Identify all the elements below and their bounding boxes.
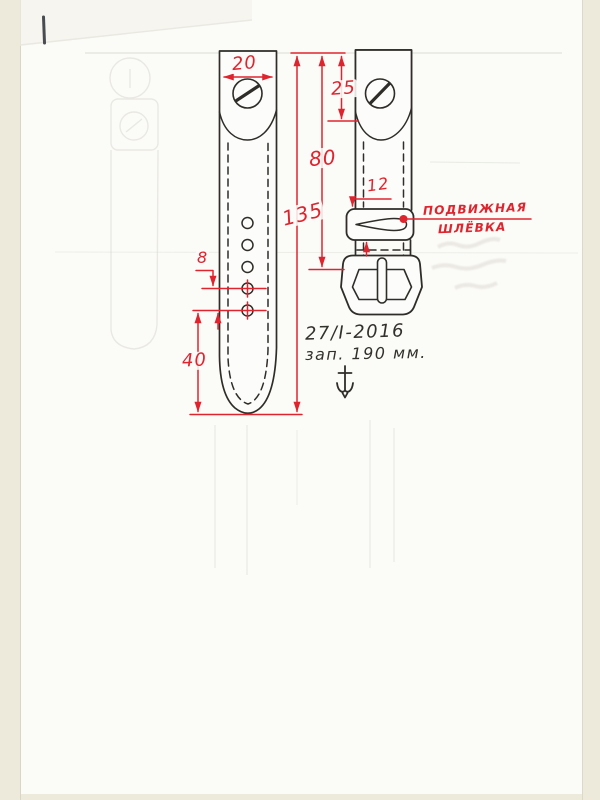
note-date: 27/I-2016 <box>305 322 406 343</box>
dim-label-top-to-buckle: 80 <box>307 147 338 169</box>
bleed-through-ghost <box>110 58 158 349</box>
keeper <box>347 209 414 240</box>
dim-label-lug-tab: 25 <box>329 79 357 99</box>
ghost-handwriting <box>432 239 506 288</box>
drawing-canvas <box>0 0 600 800</box>
note-length: зап. 190 мм. <box>305 345 427 363</box>
dim-label-tip-to-hole: 40 <box>181 351 209 370</box>
keeper-callout-line2: ШЛЁВКА <box>438 221 507 235</box>
dim-label-hole-pitch: 8 <box>196 250 209 266</box>
pencil-guide-lines <box>55 53 578 575</box>
dim-label-keeper: 12 <box>365 175 391 194</box>
scanned-strap-drawing: 20 25 80 135 12 8 40 ПОДВИЖНАЯ ШЛЁВКА 27… <box>0 0 600 800</box>
dim-label-strap-width: 20 <box>230 54 258 74</box>
buckle-prong <box>378 258 387 303</box>
right-strap-screw-head-icon <box>366 79 395 108</box>
keeper-callout-line1: ПОДВИЖНАЯ <box>423 201 528 217</box>
pen-mark <box>44 17 45 43</box>
buckle <box>341 256 422 315</box>
paper-top-edge <box>20 0 252 46</box>
left-strap-screw-head-icon <box>233 79 262 108</box>
anchor-mark-icon <box>337 366 353 398</box>
